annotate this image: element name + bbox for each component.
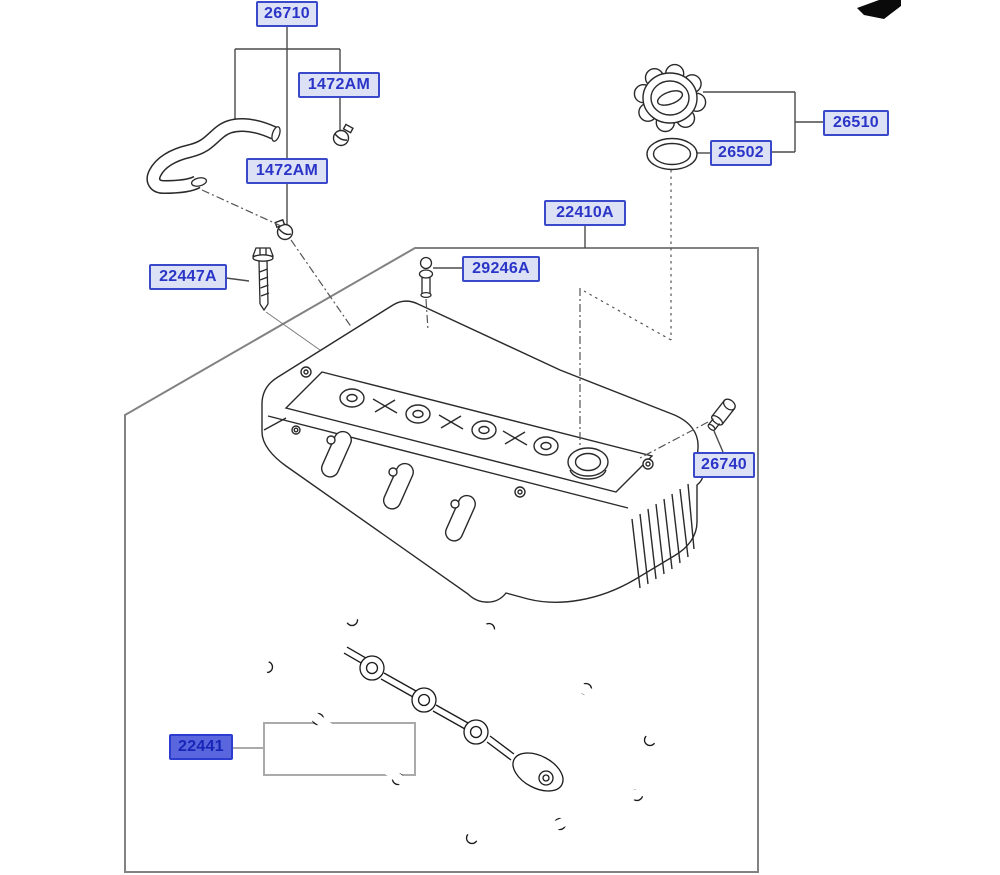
hose-clamp-drawing-2 (275, 220, 292, 240)
part-label-26740[interactable]: 26740 (693, 452, 755, 478)
part-label-26502[interactable]: 26502 (710, 140, 772, 166)
bolt-29246A-drawing (420, 258, 433, 298)
pcv-valve-26740-drawing (705, 397, 737, 433)
part-label-26510[interactable]: 26510 (823, 110, 889, 136)
part-label-1472AM-upper[interactable]: 1472AM (298, 72, 380, 98)
part-label-22410A[interactable]: 22410A (544, 200, 626, 226)
bolt-22447A-drawing (253, 248, 273, 310)
part-label-29246A[interactable]: 29246A (462, 256, 540, 282)
oil-filler-cap-drawing (634, 65, 705, 132)
part-label-1472AM-lower[interactable]: 1472AM (246, 158, 328, 184)
part-label-22447A[interactable]: 22447A (149, 264, 227, 290)
part-label-22441[interactable]: 22441 (169, 734, 233, 760)
part-label-26710[interactable]: 26710 (256, 1, 318, 27)
front-direction-arrow-icon (857, 0, 901, 19)
valve-cover-drawing (262, 301, 703, 602)
rocker-cover-gasket-drawing (260, 600, 673, 844)
parts-diagram-page: 26710 1472AM 1472AM 26510 26502 22410A 2… (0, 0, 1000, 875)
hose-clamp-drawing-1 (334, 124, 353, 145)
filler-cap-gasket-drawing (647, 139, 697, 170)
